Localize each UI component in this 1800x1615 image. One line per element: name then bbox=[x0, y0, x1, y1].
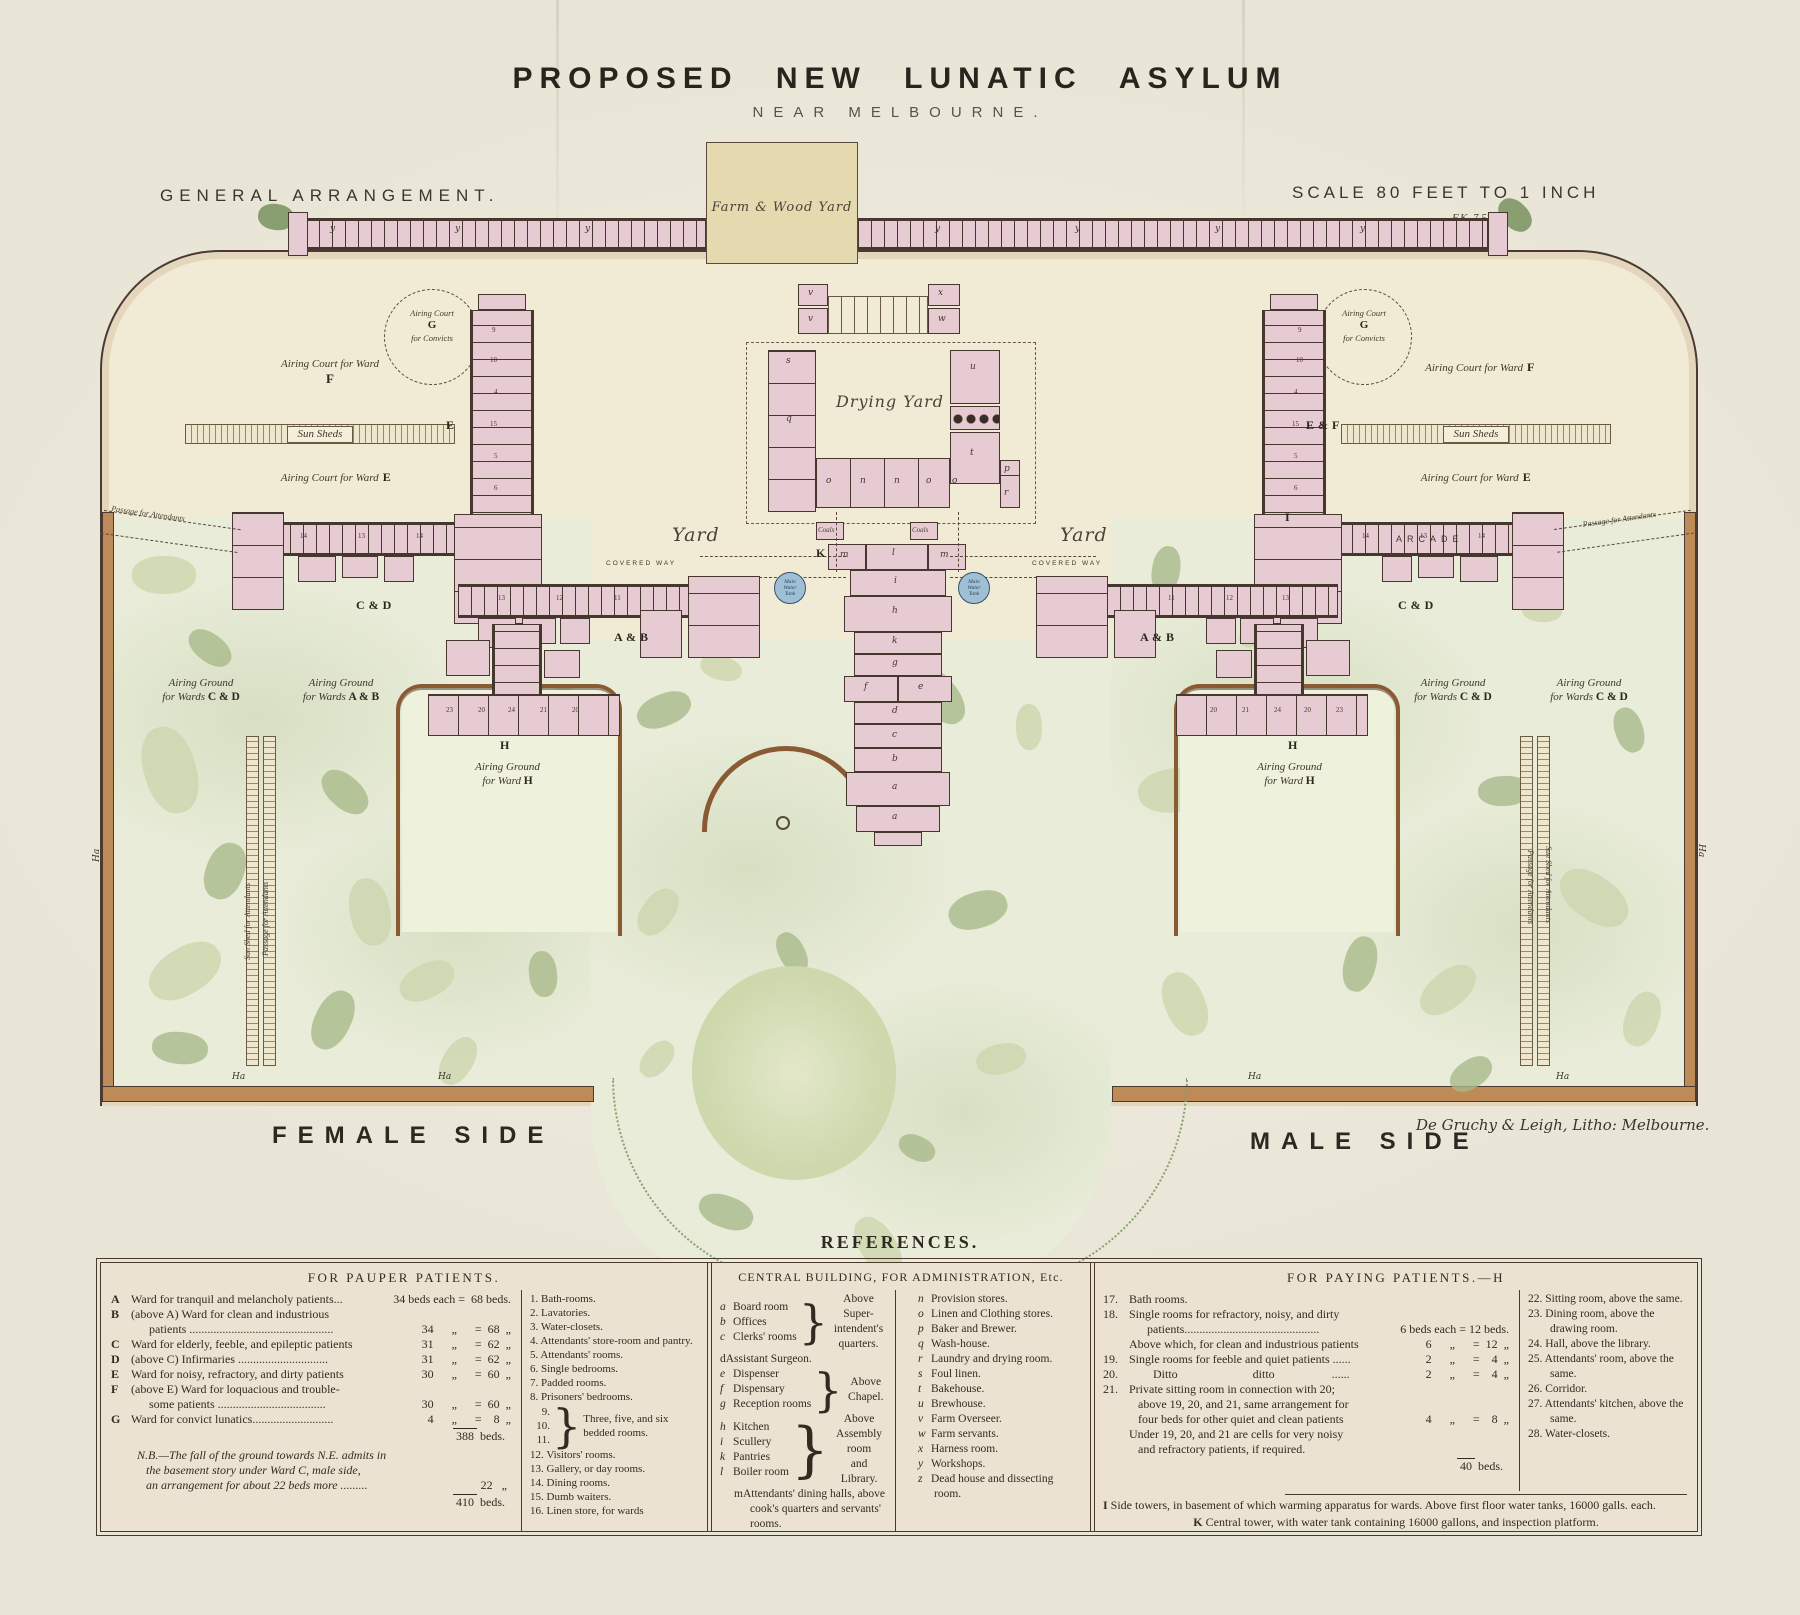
dispenser bbox=[898, 676, 952, 702]
room-number-label: 10 bbox=[490, 356, 497, 364]
room-letter-label: y bbox=[585, 224, 590, 234]
room-letter-label: o bbox=[826, 476, 831, 486]
fountain bbox=[776, 816, 790, 830]
ward-room bbox=[1460, 556, 1498, 582]
yard-label-left: Yard bbox=[672, 524, 720, 546]
paying-row: 19. Single rooms for feeble and quiet pa… bbox=[1103, 1352, 1511, 1367]
room-number-label: 21 bbox=[540, 706, 547, 714]
yard-label-right: Yard bbox=[1060, 524, 1108, 546]
room-letter-label: y bbox=[330, 224, 335, 234]
room-letter-label: s bbox=[786, 356, 791, 366]
gate-lodge bbox=[928, 284, 960, 306]
side-towers-note: I Side towers, in basement of which warm… bbox=[1095, 1497, 1697, 1514]
ward-room bbox=[1306, 640, 1350, 676]
room-number-label: 15 bbox=[490, 420, 497, 428]
central-item: qWash-house. bbox=[904, 1337, 1082, 1352]
pauper-row: B (above A) Ward for clean and industrio… bbox=[109, 1307, 513, 1337]
room-number-label: 13 bbox=[1282, 594, 1289, 602]
room-number-label: 14 bbox=[416, 532, 423, 540]
room-letter-label: d bbox=[892, 706, 898, 716]
paying-ward-h-left bbox=[428, 694, 620, 736]
room-letter-label: v bbox=[808, 288, 813, 298]
central-item: hKitchen bbox=[720, 1420, 789, 1435]
link-wing-left bbox=[492, 624, 542, 700]
wing-end-block bbox=[288, 212, 308, 256]
room-number-label: 24 bbox=[1274, 706, 1281, 714]
central-right-column: nProvision stores.oLinen and Clothing st… bbox=[896, 1290, 1090, 1531]
room-number-label: 20 bbox=[478, 706, 485, 714]
room-number-label: 9 bbox=[1298, 326, 1302, 334]
room-list-item: 3. Water-closets. bbox=[530, 1320, 699, 1334]
paying-rooms-column: 22. Sitting room, above the same.23. Din… bbox=[1520, 1290, 1697, 1491]
paying-row: 20. Ditto ditto ...... 2 „ = 4 „ bbox=[1103, 1367, 1511, 1382]
side-tower-left bbox=[232, 512, 284, 610]
room-number-label: 11 bbox=[1168, 594, 1175, 602]
ward-room bbox=[1382, 556, 1412, 582]
central-item: uBrewhouse. bbox=[904, 1397, 1082, 1412]
airing-court-f-right-label: Airing Court for Ward F bbox=[1370, 360, 1590, 375]
paying-rows-column: 17. Bath rooms. 18. Single rooms for ref… bbox=[1095, 1290, 1519, 1491]
room-letter-label: g bbox=[892, 658, 898, 668]
airing-court-e-left-label: Airing Court for Ward E bbox=[226, 470, 446, 485]
room-number-label: 6 bbox=[494, 484, 498, 492]
central-item: vFarm Overseer. bbox=[904, 1412, 1082, 1427]
room-letter-label: n bbox=[860, 476, 866, 486]
sun-sheds-right: Sun Sheds bbox=[1341, 424, 1611, 444]
section-central: CENTRAL BUILDING, FOR ADMINISTRATION, Et… bbox=[712, 1263, 1090, 1531]
room-number-label: 5 bbox=[494, 452, 498, 460]
board-room bbox=[846, 772, 950, 806]
main-water-tank: Main Water Tank bbox=[774, 572, 806, 604]
ha-ha-wall-left bbox=[102, 1086, 594, 1102]
airing-ground-label: Airing Ground for Ward H bbox=[1212, 760, 1367, 788]
room-letter-label: b bbox=[892, 754, 898, 764]
covered-way-label-right: COVERED WAY bbox=[1032, 560, 1102, 567]
central-item: rLaundry and drying room. bbox=[904, 1352, 1082, 1367]
room-list-item: 22. Sitting room, above the same. bbox=[1528, 1292, 1689, 1307]
central-item: yWorkshops. bbox=[904, 1457, 1082, 1472]
paying-ward-h-right bbox=[1176, 694, 1368, 736]
room-list-item: 5. Attendants' rooms. bbox=[530, 1348, 699, 1362]
pauper-rooms-column: 1. Bath-rooms.2. Lavatories.3. Water-clo… bbox=[522, 1290, 707, 1531]
room-list-item: 2. Lavatories. bbox=[530, 1306, 699, 1320]
central-item: tBakehouse. bbox=[904, 1382, 1082, 1397]
airing-ground-label: Airing Ground for Ward H bbox=[430, 760, 585, 788]
ward-f-cap bbox=[478, 294, 526, 310]
room-number-label: 24 bbox=[508, 706, 515, 714]
convict-court-left-label: Airing Court G for Convicts bbox=[386, 306, 478, 343]
ward-room bbox=[384, 556, 414, 582]
link-wing-right bbox=[1254, 624, 1304, 700]
coals-label: Coals bbox=[912, 526, 928, 534]
covered-way-label-left: COVERED WAY bbox=[606, 560, 676, 567]
ward-marker: C & D bbox=[356, 598, 392, 613]
pauper-total: 388 beds. bbox=[109, 1427, 513, 1445]
room-letter-label: p bbox=[1004, 464, 1010, 474]
pauper-row: A Ward for tranquil and melancholy patie… bbox=[109, 1292, 513, 1307]
room-number-label: 20 bbox=[1210, 706, 1217, 714]
central-item: kPantries bbox=[720, 1450, 789, 1465]
main-water-tank: Main Water Tank bbox=[958, 572, 990, 604]
room-number-label: 4 bbox=[1294, 388, 1298, 396]
front-porch bbox=[874, 832, 922, 846]
ha-ha-label: Ha bbox=[1556, 1072, 1569, 1082]
ward-marker: A & B bbox=[1140, 630, 1175, 645]
paying-row: Above which, for clean and industrious p… bbox=[1103, 1337, 1511, 1352]
airing-ground-label: Airing Ground for Wards C & D bbox=[1388, 676, 1518, 704]
room-list-item: 1. Bath-rooms. bbox=[530, 1292, 699, 1306]
room-list-item: 12. Visitors' rooms. bbox=[530, 1448, 699, 1462]
room-letter-label: h bbox=[892, 606, 898, 616]
sun-sheds-label: Sun Sheds bbox=[287, 426, 354, 443]
room-letter-label: a bbox=[892, 782, 897, 792]
boiler-room bbox=[866, 544, 928, 570]
north-wing-east bbox=[858, 218, 1488, 250]
room-letter-label: y bbox=[935, 224, 940, 234]
kitchen bbox=[844, 596, 952, 632]
central-item: zDead house and dissecting room. bbox=[904, 1472, 1082, 1502]
ward-marker: E & F bbox=[1306, 418, 1340, 433]
paying-row: 17. Bath rooms. bbox=[1103, 1292, 1511, 1307]
room-letter-label: q bbox=[786, 414, 792, 424]
room-number-label: 23 bbox=[1336, 706, 1343, 714]
room-letter-label: l bbox=[892, 548, 895, 558]
room-letter-label: k bbox=[892, 636, 897, 646]
central-item: fDispensary bbox=[720, 1382, 811, 1397]
central-item: cClerks' rooms bbox=[720, 1330, 797, 1345]
sun-sheds-left: Sun Sheds bbox=[185, 424, 455, 444]
references-heading: REFERENCES. bbox=[0, 1232, 1800, 1253]
room-letter-label: c bbox=[892, 730, 897, 740]
room-list-item: 7. Padded rooms. bbox=[530, 1376, 699, 1390]
clerks-rooms bbox=[854, 724, 942, 748]
room-number-label: 9 bbox=[492, 326, 496, 334]
dispensary bbox=[844, 676, 898, 702]
ward-room bbox=[342, 556, 378, 578]
ward-marker: K bbox=[816, 546, 826, 561]
central-item: aBoard room bbox=[720, 1300, 797, 1315]
ward-room bbox=[1206, 618, 1236, 644]
bakehouse-block bbox=[950, 432, 1000, 484]
airing-ground-label: Airing Ground for Wards C & D bbox=[136, 676, 266, 704]
airing-ground-label: Airing Ground for Wards A & B bbox=[276, 676, 406, 704]
room-number-label: 15 bbox=[1292, 420, 1299, 428]
central-item: pBaker and Brewer. bbox=[904, 1322, 1082, 1337]
washhouse-wing bbox=[768, 350, 816, 512]
lithograph-sheet: PROPOSED NEW LUNATIC ASYLUM NEAR MELBOUR… bbox=[0, 0, 1800, 1615]
ward-room bbox=[1418, 556, 1454, 578]
room-letter-label: n bbox=[894, 476, 900, 486]
room-letter-label: y bbox=[1360, 224, 1365, 234]
central-item: iScullery bbox=[720, 1435, 789, 1450]
pauper-row: G Ward for convict lunatics.............… bbox=[109, 1412, 513, 1427]
room-list-item: 23. Dining room, above the drawing room. bbox=[1528, 1307, 1689, 1337]
room-letter-label: i bbox=[894, 576, 897, 586]
central-header: CENTRAL BUILDING, FOR ADMINISTRATION, Et… bbox=[712, 1263, 1090, 1290]
drying-yard-label: Drying Yard bbox=[800, 392, 980, 411]
pauper-wards-column: A Ward for tranquil and melancholy patie… bbox=[101, 1290, 521, 1531]
room-letter-label: m bbox=[940, 550, 949, 560]
room-number-label: 21 bbox=[1242, 706, 1249, 714]
ward-room bbox=[544, 650, 580, 678]
arcade-label: ARCADE bbox=[1396, 534, 1464, 544]
paying-header: FOR PAYING PATIENTS.—H bbox=[1095, 1263, 1697, 1290]
room-list-item: 16. Linen store, for wards bbox=[530, 1504, 699, 1518]
room-letter-label: y bbox=[455, 224, 460, 234]
room-number-label: 13 bbox=[1420, 532, 1427, 540]
room-list-item: 28. Water-closets. bbox=[1528, 1427, 1689, 1442]
pantries bbox=[854, 632, 942, 654]
room-list-item: 25. Attendants' room, above the same. bbox=[1528, 1352, 1689, 1382]
paying-row: 18. Single rooms for refractory, noisy, … bbox=[1103, 1307, 1511, 1337]
room-letter-label: u bbox=[970, 362, 976, 372]
board-room-group: aBoard roombOfficescClerks' rooms } Abov… bbox=[720, 1292, 887, 1352]
room-number-label: 14 bbox=[1478, 532, 1485, 540]
pauper-row: C Ward for elderly, feeble, and epilepti… bbox=[109, 1337, 513, 1352]
room-number-label: 12 bbox=[1226, 594, 1233, 602]
ward-marker: H bbox=[1288, 738, 1298, 753]
female-side-label: FEMALE SIDE bbox=[272, 1122, 554, 1150]
room-letter-label: a bbox=[892, 812, 897, 822]
room-number-label: 23 bbox=[446, 706, 453, 714]
ward-room bbox=[560, 618, 590, 644]
room-number-label: 13 bbox=[358, 532, 365, 540]
airing-court-f-left-label: Airing Court for Ward F bbox=[240, 356, 420, 387]
farm-wood-yard-label: Farm & Wood Yard bbox=[706, 200, 858, 215]
room-list-item: 6. Single bedrooms. bbox=[530, 1362, 699, 1376]
pauper-grand-total: 410 beds. bbox=[109, 1493, 513, 1511]
west-wall bbox=[102, 512, 114, 1100]
central-item: gReception rooms bbox=[720, 1397, 811, 1412]
ward-marker: H bbox=[500, 738, 510, 753]
room-number-label: 14 bbox=[300, 532, 307, 540]
room-letter-label: y bbox=[1215, 224, 1220, 234]
center-junction-right bbox=[1036, 576, 1108, 658]
garden-blob bbox=[132, 556, 196, 594]
paying-row: 21. Private sitting room in connection w… bbox=[1103, 1382, 1511, 1427]
baker-brewer-rooms bbox=[1000, 460, 1020, 508]
central-item: dAssistant Surgeon. bbox=[720, 1352, 887, 1367]
attendants-strip-label: Passage for Attendants bbox=[261, 882, 270, 956]
ward-marker: I bbox=[1285, 510, 1290, 525]
room-letter-label: w bbox=[938, 314, 946, 324]
attendants-strip-label: Sun Shed for Attendants bbox=[1544, 846, 1553, 923]
room-number-label: 10 bbox=[1296, 356, 1303, 364]
room-number-label: 20 bbox=[572, 706, 579, 714]
assistant-surgeon bbox=[854, 702, 942, 724]
attendants-strip-label: Passage for Attendants bbox=[1526, 850, 1535, 924]
airing-court-e-right-label: Airing Court for Ward E bbox=[1366, 470, 1586, 485]
bedded-rooms-group: 9. 10. 11. } Three, five, and six bedded… bbox=[530, 1404, 699, 1448]
ha-ha-label: Ha bbox=[1248, 1072, 1261, 1082]
central-tower-note: K Central tower, with water tank contain… bbox=[1095, 1514, 1697, 1531]
ward-marker: E bbox=[446, 418, 455, 433]
ha-ha-label: Ha bbox=[438, 1072, 451, 1082]
garden-blob bbox=[1016, 704, 1043, 750]
pauper-row: D (above C) Infirmaries ................… bbox=[109, 1352, 513, 1367]
room-letter-label: o bbox=[952, 476, 957, 486]
central-item: nProvision stores. bbox=[904, 1292, 1082, 1307]
room-number-label: 4 bbox=[494, 388, 498, 396]
footer-rule bbox=[1285, 1494, 1687, 1495]
pauper-header: FOR PAUPER PATIENTS. bbox=[101, 1263, 707, 1290]
room-number-label: 12 bbox=[556, 594, 563, 602]
room-letter-label: v bbox=[808, 314, 813, 324]
central-item: eDispenser bbox=[720, 1367, 811, 1382]
wing-end-block bbox=[1488, 212, 1508, 256]
ward-room bbox=[1216, 650, 1252, 678]
north-wing-west bbox=[306, 218, 706, 250]
convict-court-right-label: Airing Court G for Convicts bbox=[1318, 306, 1410, 343]
room-list-item: 4. Attendants' store-room and pantry. bbox=[530, 1334, 699, 1348]
ha-ha-label: Ha bbox=[232, 1072, 245, 1082]
room-list-item: 13. Gallery, or day rooms. bbox=[530, 1462, 699, 1476]
ward-room bbox=[446, 640, 490, 676]
room-number-label: 6 bbox=[1294, 484, 1298, 492]
ha-ha-label: Ha bbox=[92, 849, 102, 862]
room-letter-label: y bbox=[1075, 224, 1080, 234]
ward-room bbox=[298, 556, 336, 582]
room-list-item: 15. Dumb waiters. bbox=[530, 1490, 699, 1504]
sun-sheds-label: Sun Sheds bbox=[1443, 426, 1510, 443]
central-left-column: aBoard roombOfficescClerks' rooms } Abov… bbox=[712, 1290, 895, 1531]
room-list-item: 26. Corridor. bbox=[1528, 1382, 1689, 1397]
reception-rooms bbox=[854, 654, 942, 676]
pauper-row: F (above E) Ward for loquacious and trou… bbox=[109, 1382, 513, 1412]
ward-f-cap bbox=[1270, 294, 1318, 310]
references-box: FOR PAUPER PATIENTS. A Ward for tranquil… bbox=[100, 1262, 1698, 1532]
pauper-nb-note: N.B.—The fall of the ground towards N.E.… bbox=[137, 1448, 513, 1493]
section-pauper: FOR PAUPER PATIENTS. A Ward for tranquil… bbox=[101, 1263, 707, 1531]
room-letter-label: e bbox=[918, 682, 923, 692]
entrance-court bbox=[828, 296, 928, 334]
central-item: oLinen and Clothing stores. bbox=[904, 1307, 1082, 1322]
room-number-label: 14 bbox=[1362, 532, 1369, 540]
east-wall bbox=[1684, 512, 1696, 1100]
scullery bbox=[850, 570, 946, 596]
central-item: xHarness room. bbox=[904, 1442, 1082, 1457]
section-paying: FOR PAYING PATIENTS.—H 17. Bath rooms. bbox=[1095, 1263, 1697, 1531]
lithographer-credit: De Gruchy & Leigh, Litho: Melbourne. bbox=[1416, 1116, 1709, 1134]
room-letter-label: m bbox=[840, 550, 849, 560]
ha-ha-label: Ha bbox=[1696, 844, 1706, 857]
room-letter-label: r bbox=[1004, 488, 1008, 498]
room-list-item: 14. Dining rooms. bbox=[530, 1476, 699, 1490]
central-item: wFarm servants. bbox=[904, 1427, 1082, 1442]
attendants-strip-label: Sun Shed for Attendants bbox=[243, 883, 252, 960]
central-item: lBoiler room bbox=[720, 1465, 789, 1480]
assembly-group: hKitcheniScullerykPantrieslBoiler room }… bbox=[720, 1412, 887, 1487]
center-junction-left bbox=[688, 576, 760, 658]
room-number-label: 11 bbox=[614, 594, 621, 602]
room-number-label: 20 bbox=[1304, 706, 1311, 714]
coals-label: Coals bbox=[818, 526, 834, 534]
ward-marker: C & D bbox=[1398, 598, 1434, 613]
paying-row: Under 19, 20, and 21 are cells for very … bbox=[1103, 1427, 1511, 1457]
pauper-row: E Ward for noisy, refractory, and dirty … bbox=[109, 1367, 513, 1382]
room-letter-label: t bbox=[970, 448, 974, 458]
board-room bbox=[856, 806, 940, 832]
room-list-item: 24. Hall, above the library. bbox=[1528, 1337, 1689, 1352]
offices bbox=[854, 748, 942, 772]
central-item: bOffices bbox=[720, 1315, 797, 1330]
room-letter-label: f bbox=[864, 682, 867, 692]
chapel-group: eDispenserfDispensarygReception rooms } … bbox=[720, 1367, 887, 1412]
room-letter-label: o bbox=[926, 476, 931, 486]
central-item: sFoul linen. bbox=[904, 1367, 1082, 1382]
room-number-label: 13 bbox=[498, 594, 505, 602]
room-letter-label: x bbox=[938, 288, 943, 298]
airing-ground-label: Airing Ground for Wards C & D bbox=[1524, 676, 1654, 704]
room-list-item: 27. Attendants' kitchen, above the same. bbox=[1528, 1397, 1689, 1427]
ward-marker: A & B bbox=[614, 630, 649, 645]
room-number-label: 5 bbox=[1294, 452, 1298, 460]
side-tower-right bbox=[1512, 512, 1564, 610]
paying-total: 40 beds. bbox=[1103, 1457, 1511, 1475]
ha-ha-wall-right bbox=[1112, 1086, 1696, 1102]
central-item-m: mAttendants' dining halls, above cook's … bbox=[720, 1487, 887, 1532]
